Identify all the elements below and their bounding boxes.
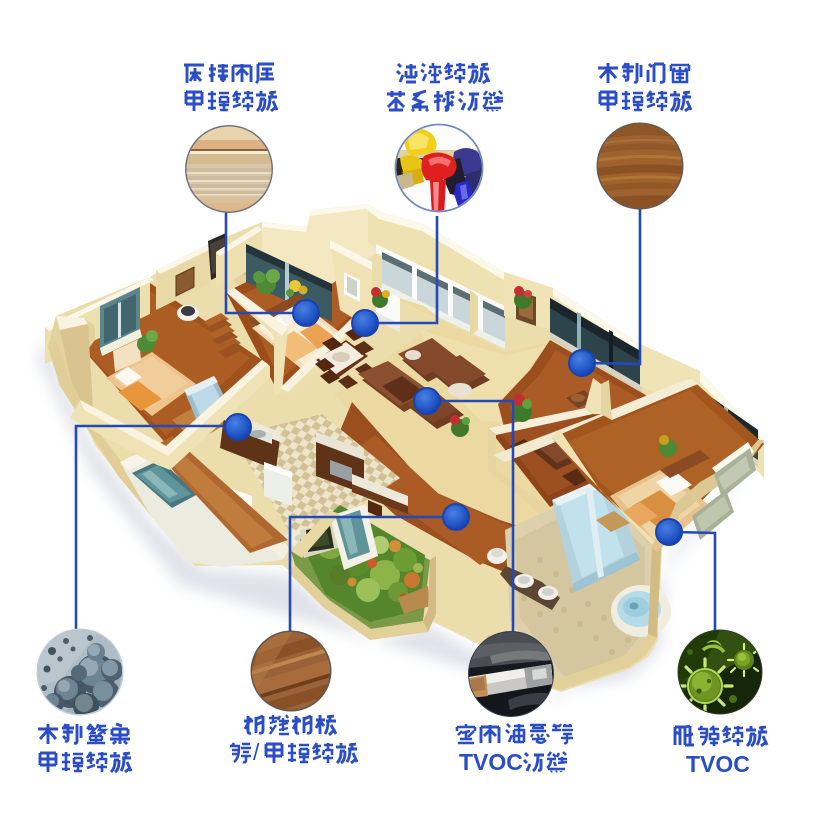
svg-text:TVOC: TVOC xyxy=(459,749,523,775)
svg-text:/: / xyxy=(253,739,260,765)
svg-text:TVOC: TVOC xyxy=(686,751,750,777)
